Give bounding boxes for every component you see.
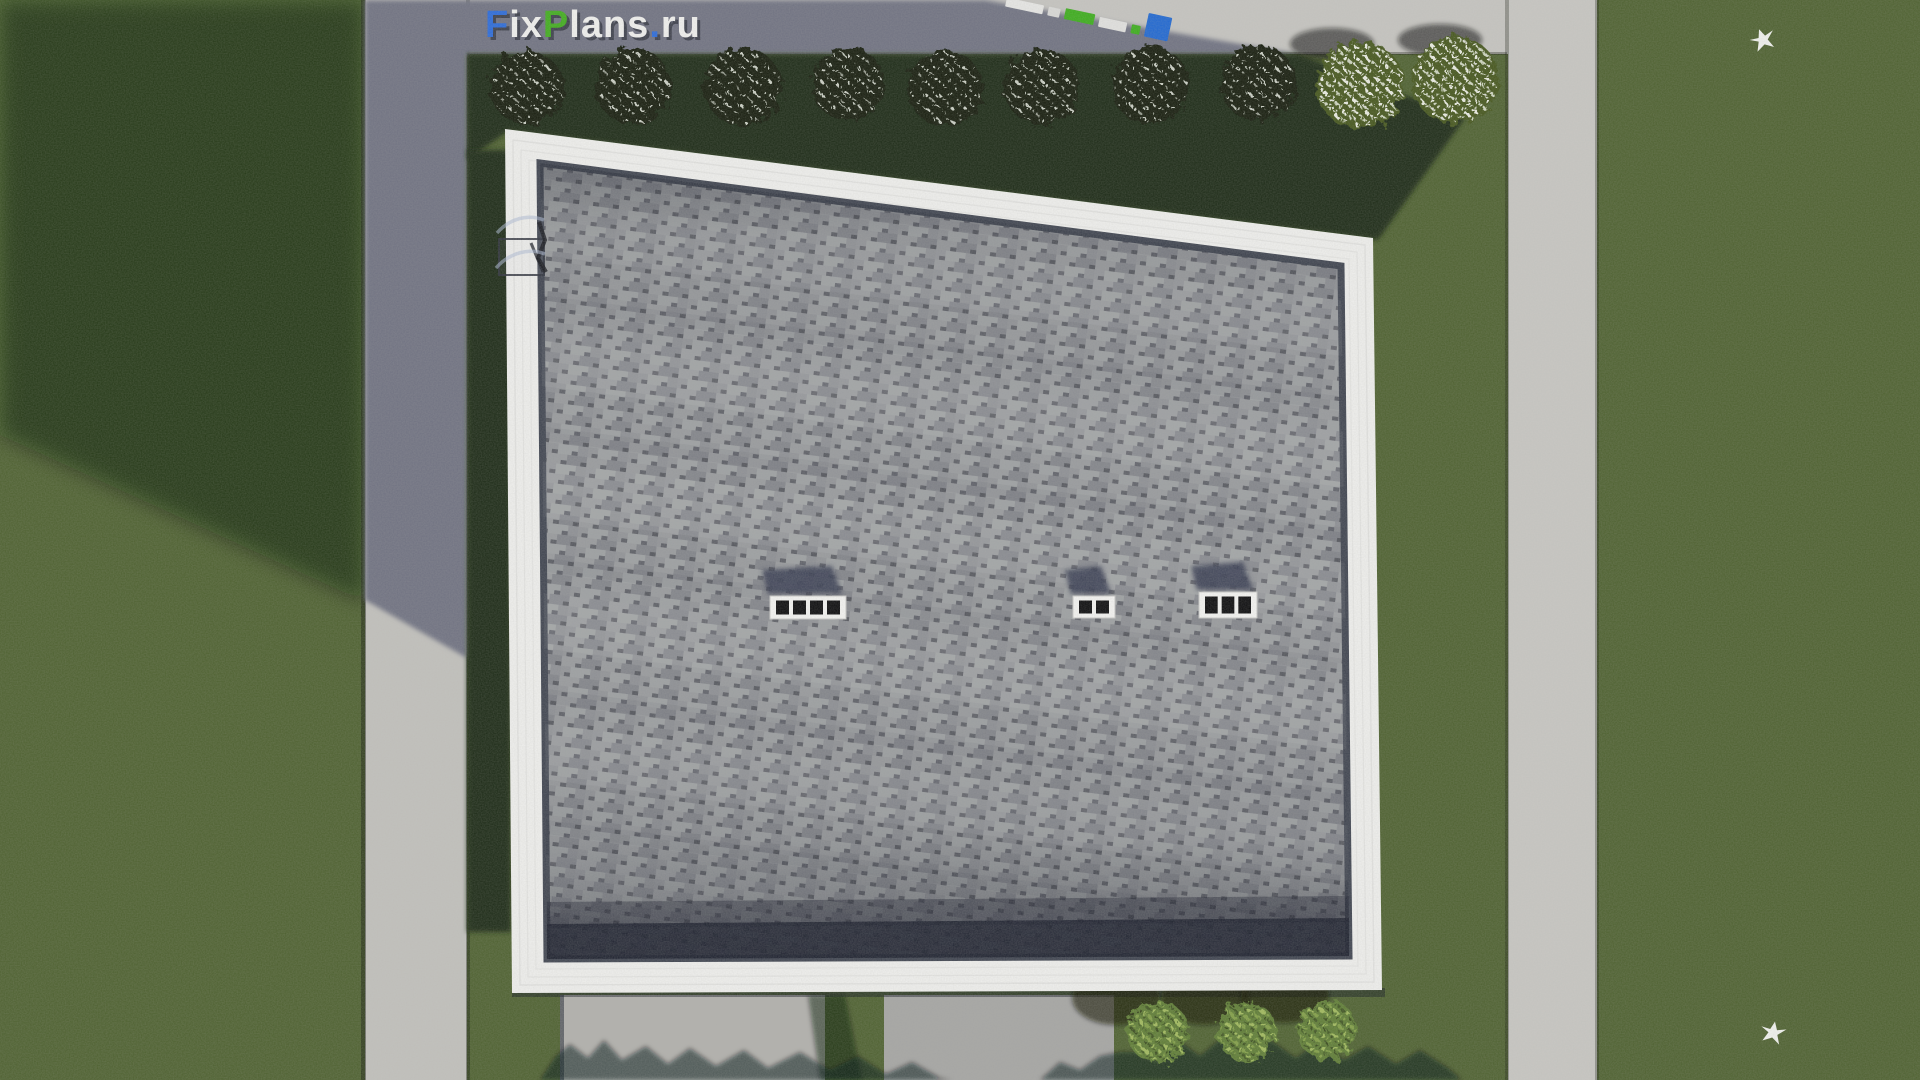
site-render: FixPlans.ru FixPlans.ru <box>0 0 1920 1080</box>
grain-overlay <box>0 0 1920 1080</box>
scene-canvas: FixPlans.ru FixPlans.ru <box>0 0 1920 1080</box>
